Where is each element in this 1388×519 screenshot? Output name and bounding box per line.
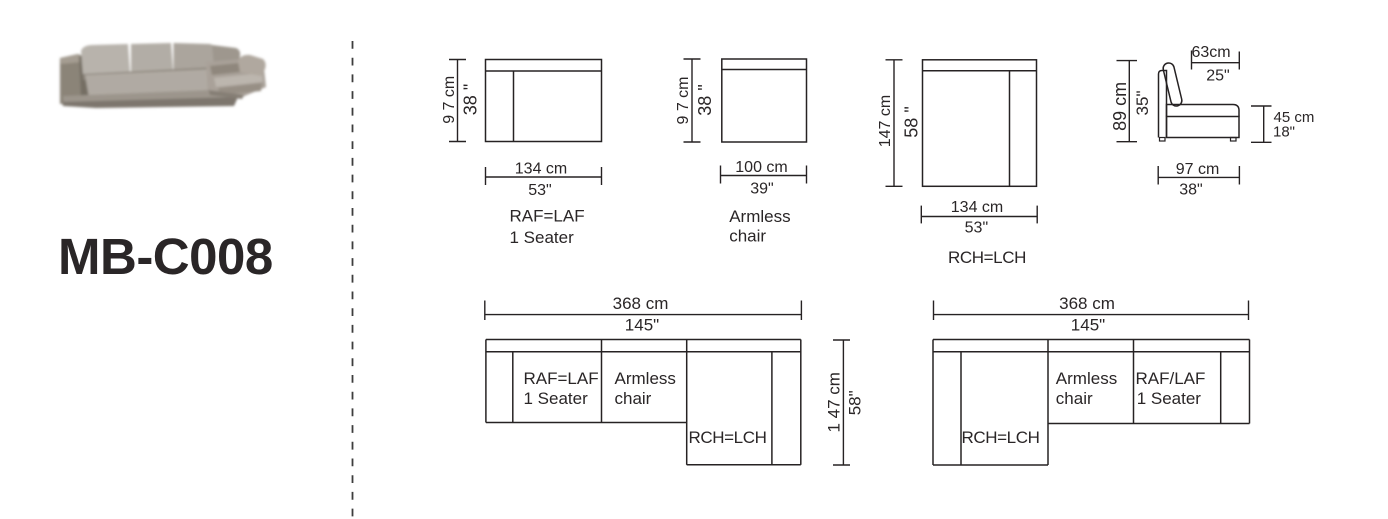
svg-text:35": 35" bbox=[1133, 91, 1152, 116]
svg-text:53": 53" bbox=[528, 182, 551, 199]
svg-text:chair: chair bbox=[1056, 389, 1093, 408]
svg-text:58 ": 58 " bbox=[902, 106, 922, 137]
svg-text:RAF=LAF: RAF=LAF bbox=[524, 369, 599, 388]
svg-text:145": 145" bbox=[625, 316, 659, 335]
svg-text:RCH=LCH: RCH=LCH bbox=[962, 428, 1040, 447]
svg-text:Armless: Armless bbox=[729, 207, 790, 226]
svg-text:63cm: 63cm bbox=[1191, 44, 1230, 61]
svg-text:89 cm: 89 cm bbox=[1110, 82, 1130, 131]
svg-text:RAF=LAF: RAF=LAF bbox=[510, 207, 585, 226]
svg-text:1 Seater: 1 Seater bbox=[510, 228, 575, 247]
svg-text:368 cm: 368 cm bbox=[1059, 294, 1115, 313]
svg-text:1 Seater: 1 Seater bbox=[1137, 389, 1202, 408]
svg-text:53": 53" bbox=[965, 220, 988, 237]
svg-text:MB-C008: MB-C008 bbox=[58, 228, 273, 285]
svg-text:38 ": 38 " bbox=[461, 84, 481, 115]
svg-text:368 cm: 368 cm bbox=[613, 294, 669, 313]
svg-text:Armless: Armless bbox=[1056, 369, 1117, 388]
svg-text:38 ": 38 " bbox=[695, 84, 715, 115]
svg-text:Armless: Armless bbox=[615, 369, 676, 388]
svg-text:1 Seater: 1 Seater bbox=[524, 389, 589, 408]
svg-text:134 cm: 134 cm bbox=[515, 161, 567, 178]
svg-text:39": 39" bbox=[750, 181, 773, 198]
svg-text:38": 38" bbox=[1179, 181, 1202, 198]
svg-text:RCH=LCH: RCH=LCH bbox=[948, 248, 1026, 267]
svg-text:58": 58" bbox=[846, 390, 865, 415]
svg-text:1 47 cm: 1 47 cm bbox=[825, 372, 844, 432]
svg-text:chair: chair bbox=[729, 227, 766, 246]
svg-text:145": 145" bbox=[1071, 316, 1105, 335]
svg-text:18": 18" bbox=[1273, 124, 1295, 141]
svg-text:9 7 cm: 9 7 cm bbox=[675, 76, 692, 124]
svg-text:RAF/LAF: RAF/LAF bbox=[1136, 369, 1206, 388]
svg-text:100 cm: 100 cm bbox=[735, 159, 787, 176]
svg-text:9 7 cm: 9 7 cm bbox=[441, 76, 458, 124]
svg-text:RCH=LCH: RCH=LCH bbox=[689, 428, 767, 447]
svg-text:97 cm: 97 cm bbox=[1176, 161, 1220, 178]
svg-text:147 cm: 147 cm bbox=[877, 95, 894, 147]
svg-text:25": 25" bbox=[1206, 68, 1229, 85]
svg-text:134 cm: 134 cm bbox=[951, 199, 1003, 216]
svg-text:chair: chair bbox=[615, 389, 652, 408]
